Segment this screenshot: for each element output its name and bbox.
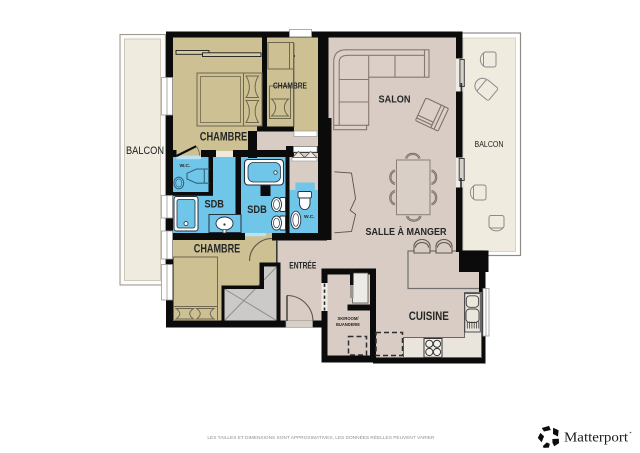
svg-text:CHAMBRE: CHAMBRE (200, 129, 248, 143)
svg-text:W.C.: W.C. (304, 214, 315, 219)
svg-text:SKIROOM/: SKIROOM/ (338, 316, 360, 321)
svg-text:SALON: SALON (379, 94, 411, 106)
svg-text:BALCON: BALCON (126, 145, 164, 157)
svg-text:BALCON: BALCON (475, 140, 504, 149)
svg-text:SDB: SDB (204, 199, 224, 211)
svg-text:CUISINE: CUISINE (409, 309, 449, 323)
svg-text:LES TAILLES ET DIMENSIONS SONT: LES TAILLES ET DIMENSIONS SONT APPROXIMA… (207, 434, 435, 441)
svg-text:ENTRÉE: ENTRÉE (289, 261, 316, 272)
svg-text:Matterport: Matterport (564, 429, 628, 444)
svg-text:BUANDERIE: BUANDERIE (336, 322, 360, 327)
svg-text:CHAMBRE: CHAMBRE (273, 81, 308, 90)
svg-text:SDB: SDB (247, 204, 267, 216)
svg-text:W.C.: W.C. (180, 163, 191, 168)
svg-text:CHAMBRE: CHAMBRE (194, 241, 241, 255)
svg-text:SALLE À MANGER: SALLE À MANGER (366, 225, 447, 238)
